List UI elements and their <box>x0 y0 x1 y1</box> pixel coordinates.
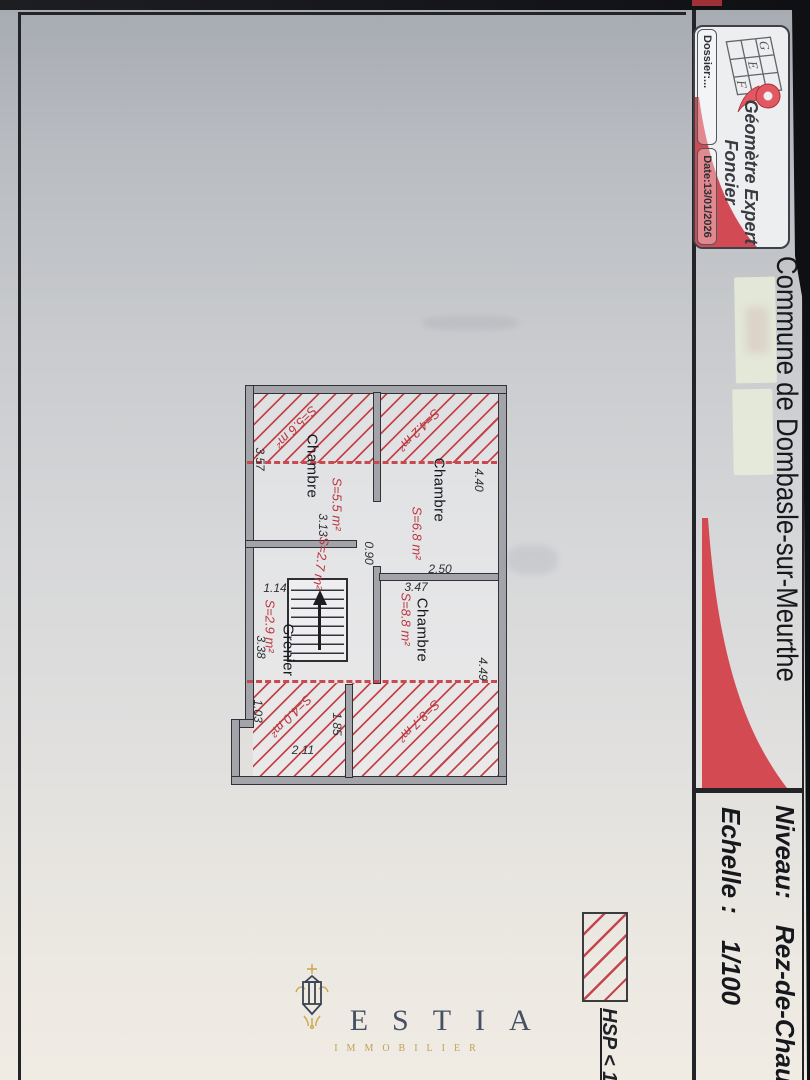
scale-label: Echelle : <box>716 807 746 914</box>
room-area: S=6.8 m² <box>410 506 425 559</box>
titlebar-swoosh-shape <box>700 518 789 788</box>
dimension-label: 2.11 <box>292 743 314 757</box>
wall <box>245 540 357 548</box>
wall <box>345 684 353 778</box>
sheet-border-bottom <box>18 12 21 1080</box>
room-name: Chambre <box>414 598 431 663</box>
dimension-label: 4.49 <box>476 657 490 680</box>
room-area: S=8.8 m² <box>399 592 414 645</box>
room-name: Chambre <box>304 434 321 499</box>
dimension-label: 4.40 <box>472 468 486 491</box>
photo-background-object <box>692 0 722 6</box>
estia-tagline: IMMOBILIER <box>0 1043 810 1054</box>
estia-brand-name: ESTIA <box>350 1004 555 1038</box>
dimension-label: 3.38 <box>254 635 268 658</box>
dimension-label: 1.85 <box>330 712 344 735</box>
wall <box>373 392 381 502</box>
room-name: Chambre <box>431 458 448 523</box>
stair-arrow-head-icon <box>313 590 327 605</box>
surveyor-name-line1: Géomètre Expert <box>741 97 761 247</box>
dimension-label: 2.50 <box>428 562 451 576</box>
dimension-label: 3.47 <box>404 580 427 594</box>
logo-fields-row: Dossier:... Date:13/01/2026 <box>697 29 717 245</box>
dimension-label: 1.14 <box>263 581 286 595</box>
wall <box>373 566 381 684</box>
pencil-smudge <box>422 316 518 330</box>
surveyor-logo-box: GEF Géomètre Expert Foncier Dossier:... … <box>693 25 790 249</box>
date-field: Date:13/01/2026 <box>697 148 717 245</box>
dimension-label: 1.03 <box>251 699 265 722</box>
surveyor-name-line2: Foncier <box>721 97 741 247</box>
wall <box>245 385 254 728</box>
dossier-field: Dossier:... <box>697 29 717 145</box>
svg-text:E: E <box>745 59 762 69</box>
dimension-label: 3.13 <box>316 513 330 536</box>
plan-sheet: GEF Géomètre Expert Foncier Dossier:... … <box>0 0 810 1080</box>
height-limit-dashed-line <box>247 680 497 683</box>
estia-watermark: ESTIA IMMOBILIER <box>0 962 810 1054</box>
redaction-patch <box>732 389 773 476</box>
room-name: Grenier <box>280 624 297 677</box>
level-label: Niveau: <box>770 805 800 899</box>
surveyor-name: Géomètre Expert Foncier <box>721 97 761 247</box>
low-ceiling-hatch-right <box>253 683 499 777</box>
height-limit-dashed-line <box>247 461 497 464</box>
floor-plan-photo: GEF Géomètre Expert Foncier Dossier:... … <box>0 0 810 1080</box>
pencil-smudge <box>506 545 558 575</box>
sheet-border-left <box>18 12 686 15</box>
svg-text:G: G <box>756 40 773 51</box>
redaction-smudge <box>746 307 769 353</box>
titlebar-section-divider <box>692 788 803 793</box>
dimension-label: 0.90 <box>362 541 376 564</box>
lantern-icon <box>279 962 345 1030</box>
wall <box>498 385 507 785</box>
wall <box>231 776 507 785</box>
room-area: S=5.5 m² <box>330 477 345 530</box>
dimension-label: 3.57 <box>253 447 267 470</box>
redaction-patch <box>734 277 777 384</box>
stair-direction-arrow <box>319 604 322 650</box>
